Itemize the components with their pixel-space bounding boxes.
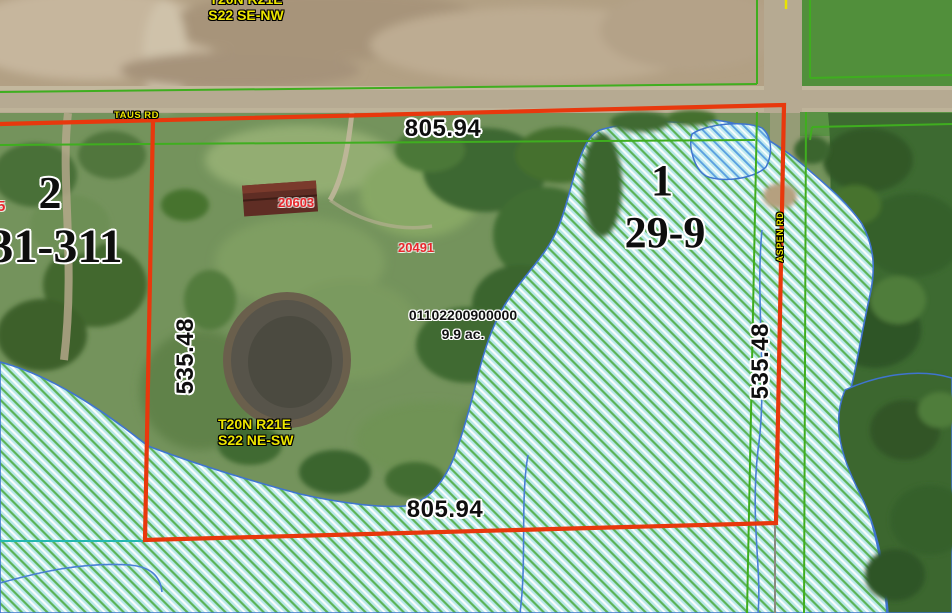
adjacent-plat-number: 31-311: [0, 221, 126, 274]
township-top: T20N R21E: [198, 0, 294, 7]
road-label-taus: TAUS RD: [114, 111, 159, 121]
plss-label-top: T20N R21E S22 SE-NW: [198, 0, 294, 23]
parcel-id-label: 01102200900000 9.9 ac.: [395, 306, 531, 344]
dimension-top: 805.94: [390, 116, 496, 142]
map-canvas[interactable]: T20N R21E S22 SE-NW TAUS RD ASPEN RD 805…: [0, 0, 952, 613]
adjacent-address-partial: 5: [0, 199, 5, 216]
parcel-area: 9.9 ac.: [395, 325, 531, 344]
address-label-20603: 20603: [278, 196, 314, 210]
pond: [223, 292, 351, 428]
section-number: 1: [640, 157, 684, 205]
plss-label-mid: T20N R21E S22 NE-SW: [218, 416, 293, 448]
parcel-id: 01102200900000: [395, 306, 531, 325]
dimension-bottom: 805.94: [392, 497, 498, 523]
township-mid: T20N R21E: [218, 416, 293, 432]
section-top: S22 SE-NW: [198, 7, 294, 23]
adjacent-section-number: 2: [28, 168, 72, 219]
pond-wetland: [691, 124, 771, 180]
road-label-aspen: ASPEN RD: [776, 206, 786, 268]
section-mid: S22 NE-SW: [218, 432, 293, 448]
dimension-left: 535.48: [173, 298, 199, 414]
address-label-20491: 20491: [398, 241, 434, 255]
dimension-right: 535.48: [748, 303, 774, 419]
plat-number: 29-9: [617, 209, 713, 257]
